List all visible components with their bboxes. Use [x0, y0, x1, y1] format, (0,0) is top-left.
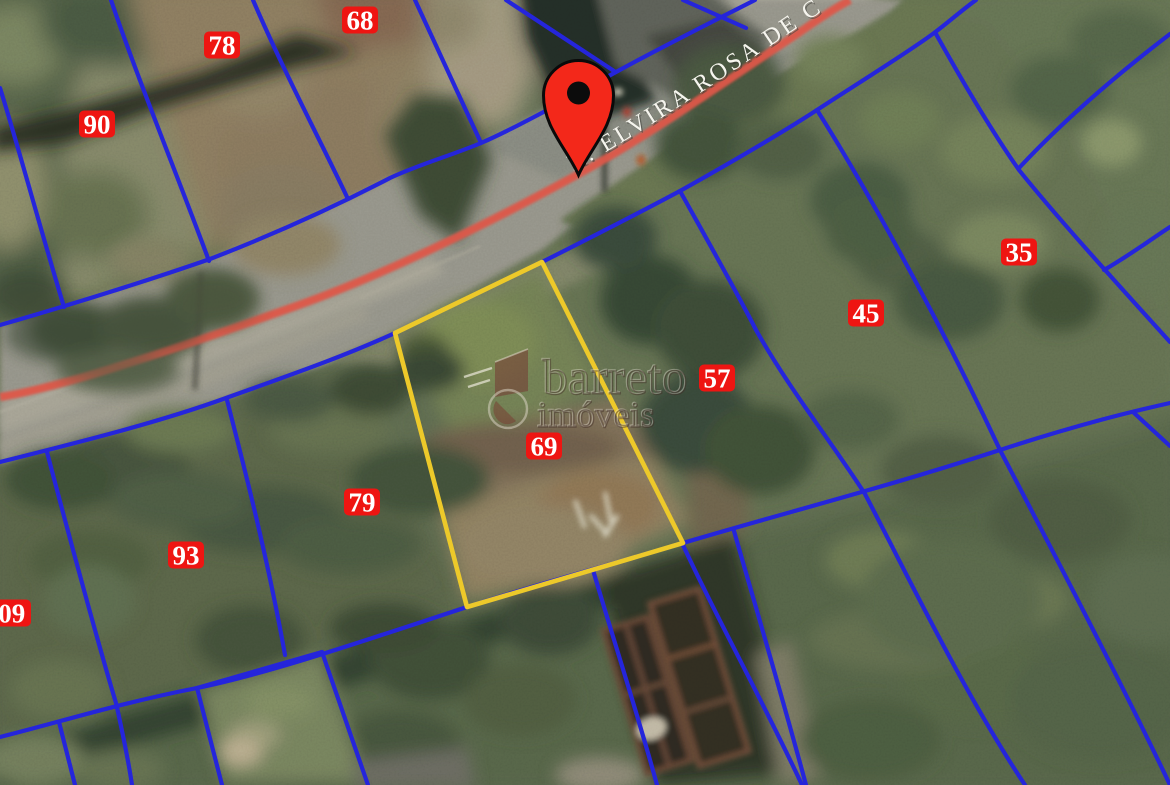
svg-text:93: 93 [173, 541, 200, 571]
svg-text:78: 78 [209, 31, 236, 61]
svg-text:68: 68 [347, 6, 374, 36]
svg-text:35: 35 [1006, 238, 1033, 268]
svg-text:90: 90 [84, 110, 111, 140]
svg-text:79: 79 [349, 488, 376, 518]
svg-text:45: 45 [853, 299, 880, 329]
svg-text:57: 57 [704, 364, 731, 394]
svg-text:109: 109 [0, 599, 25, 629]
svg-text:69: 69 [531, 432, 558, 462]
